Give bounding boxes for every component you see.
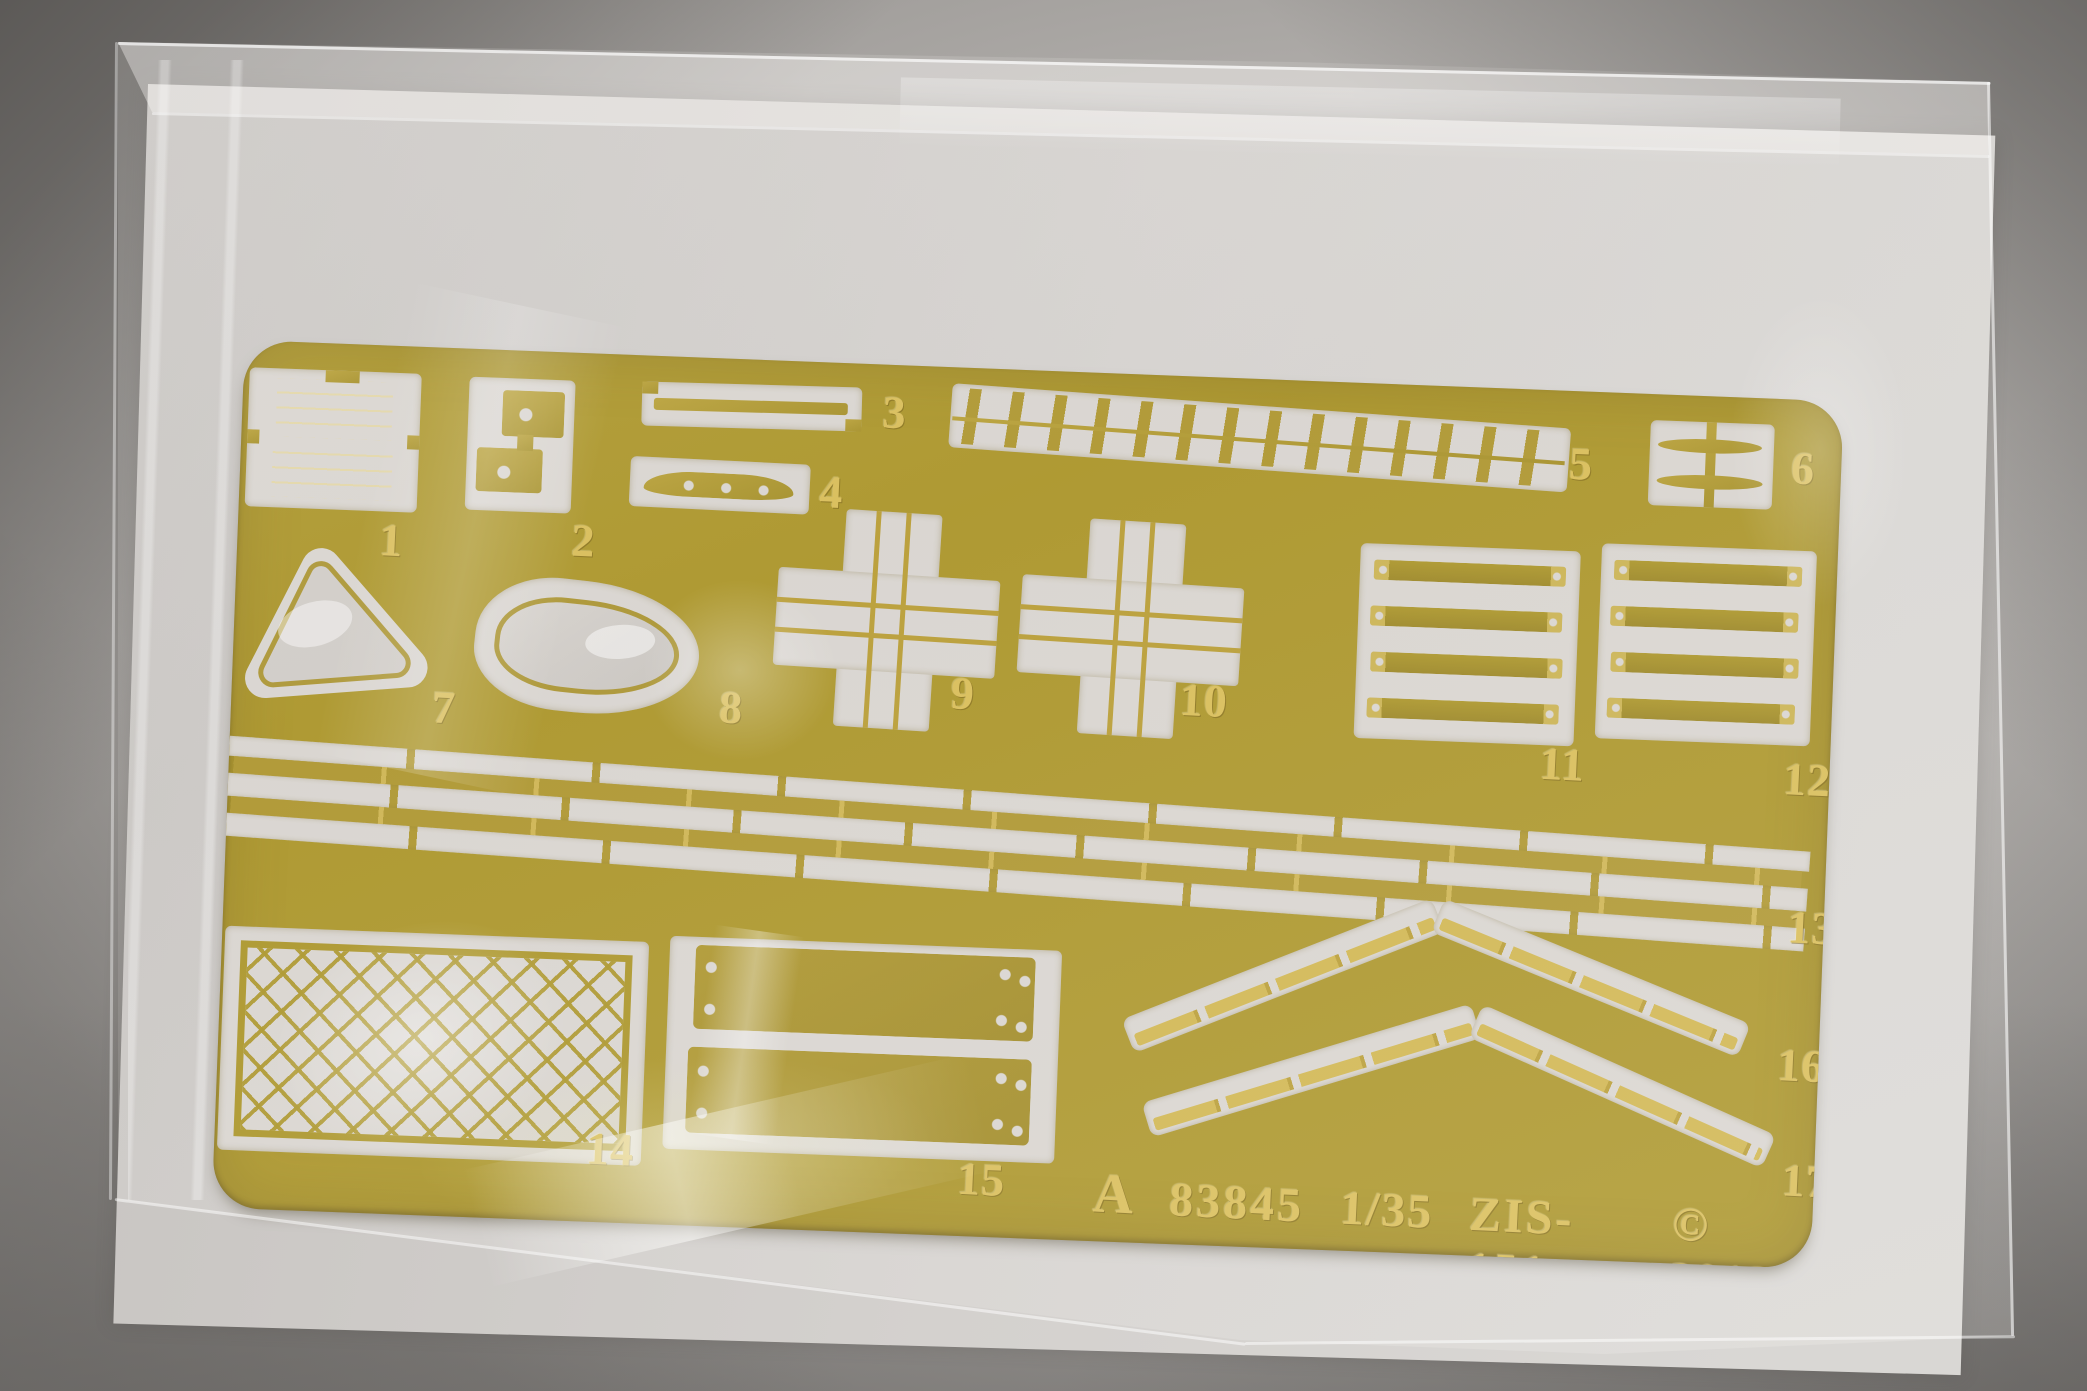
part-3-piece (654, 398, 848, 415)
part-3-tab (845, 419, 861, 431)
part-15-cutout (662, 936, 1062, 1164)
part-3-tab (642, 381, 658, 393)
part-label-4: 4 (819, 469, 845, 516)
part-11-cutout (1354, 543, 1581, 746)
part-label-10: 10 (1179, 677, 1229, 725)
part-10-hbar (1017, 574, 1245, 686)
part-3-cutout (641, 381, 862, 431)
part-14-cutout (217, 926, 649, 1166)
sheet-letter: A (1092, 1161, 1136, 1227)
part-label-14: 14 (585, 1126, 635, 1174)
part-2-piece (475, 447, 543, 494)
copyright-marking: © 2013 (1668, 1197, 1813, 1269)
part-label-5: 5 (1568, 441, 1594, 488)
part-2-cutout (465, 377, 576, 514)
part-11-strap (1374, 560, 1567, 587)
part-11-strap (1366, 697, 1559, 724)
part-label-9: 9 (950, 670, 976, 717)
part-label-11: 11 (1539, 741, 1587, 789)
part-label-6: 6 (1790, 445, 1816, 492)
part-1-tab (247, 429, 260, 443)
bag-edge-right (1987, 82, 2014, 1336)
part-12-strap (1610, 652, 1799, 679)
part-6-cutout (1648, 420, 1775, 510)
part-label-12: 12 (1782, 756, 1832, 804)
part-7-cutout (234, 543, 436, 720)
item-number: 83845 (1168, 1172, 1306, 1234)
part-1-tab (407, 435, 420, 449)
part-12-strap (1610, 606, 1799, 633)
part-label-1: 1 (378, 517, 404, 564)
part-14-mesh (233, 940, 632, 1151)
part-6-piece (1658, 437, 1762, 455)
part-1-cutout (245, 367, 422, 513)
part-label-3: 3 (882, 389, 908, 436)
part-label-7: 7 (431, 684, 457, 731)
part-1-piece (275, 378, 393, 440)
model-marking: ZIS-151 (1465, 1187, 1637, 1269)
part-label-8: 8 (718, 684, 744, 731)
part-label-15: 15 (956, 1156, 1006, 1204)
part-11-strap (1370, 651, 1563, 678)
part-9-hbar (773, 567, 1001, 679)
photo-scene: 1 2 3 4 5 6 7 8 9 10 11 12 13 14 15 16 1… (0, 0, 2087, 1391)
part-12-strap (1607, 698, 1796, 725)
part-4-piece (643, 470, 794, 502)
part-11-strap (1370, 605, 1563, 632)
part-2-tab (517, 435, 534, 452)
part-12-cutout (1595, 543, 1817, 746)
part-5-cutout (948, 383, 1571, 492)
fret-plate: 1 2 3 4 5 6 7 8 9 10 11 12 13 14 15 16 1… (212, 340, 1844, 1269)
part-5-blades (952, 388, 1563, 488)
part-15-piece (685, 1047, 1032, 1146)
part-12-strap (1614, 560, 1803, 587)
scale-marking: 1/35 (1339, 1181, 1435, 1240)
part-15-piece (693, 945, 1036, 1042)
part-6-runner (1704, 422, 1717, 507)
part-17-stripe (1152, 1022, 1474, 1130)
part-8-cutout (468, 570, 706, 726)
bag-edge-left (109, 42, 118, 1200)
part-1-piece (271, 442, 393, 501)
bag-edge-top (118, 42, 1991, 85)
part-1-tab (325, 370, 359, 383)
part-label-2: 2 (570, 518, 596, 565)
part-6-piece (1656, 473, 1762, 491)
part-2-piece (502, 390, 566, 438)
